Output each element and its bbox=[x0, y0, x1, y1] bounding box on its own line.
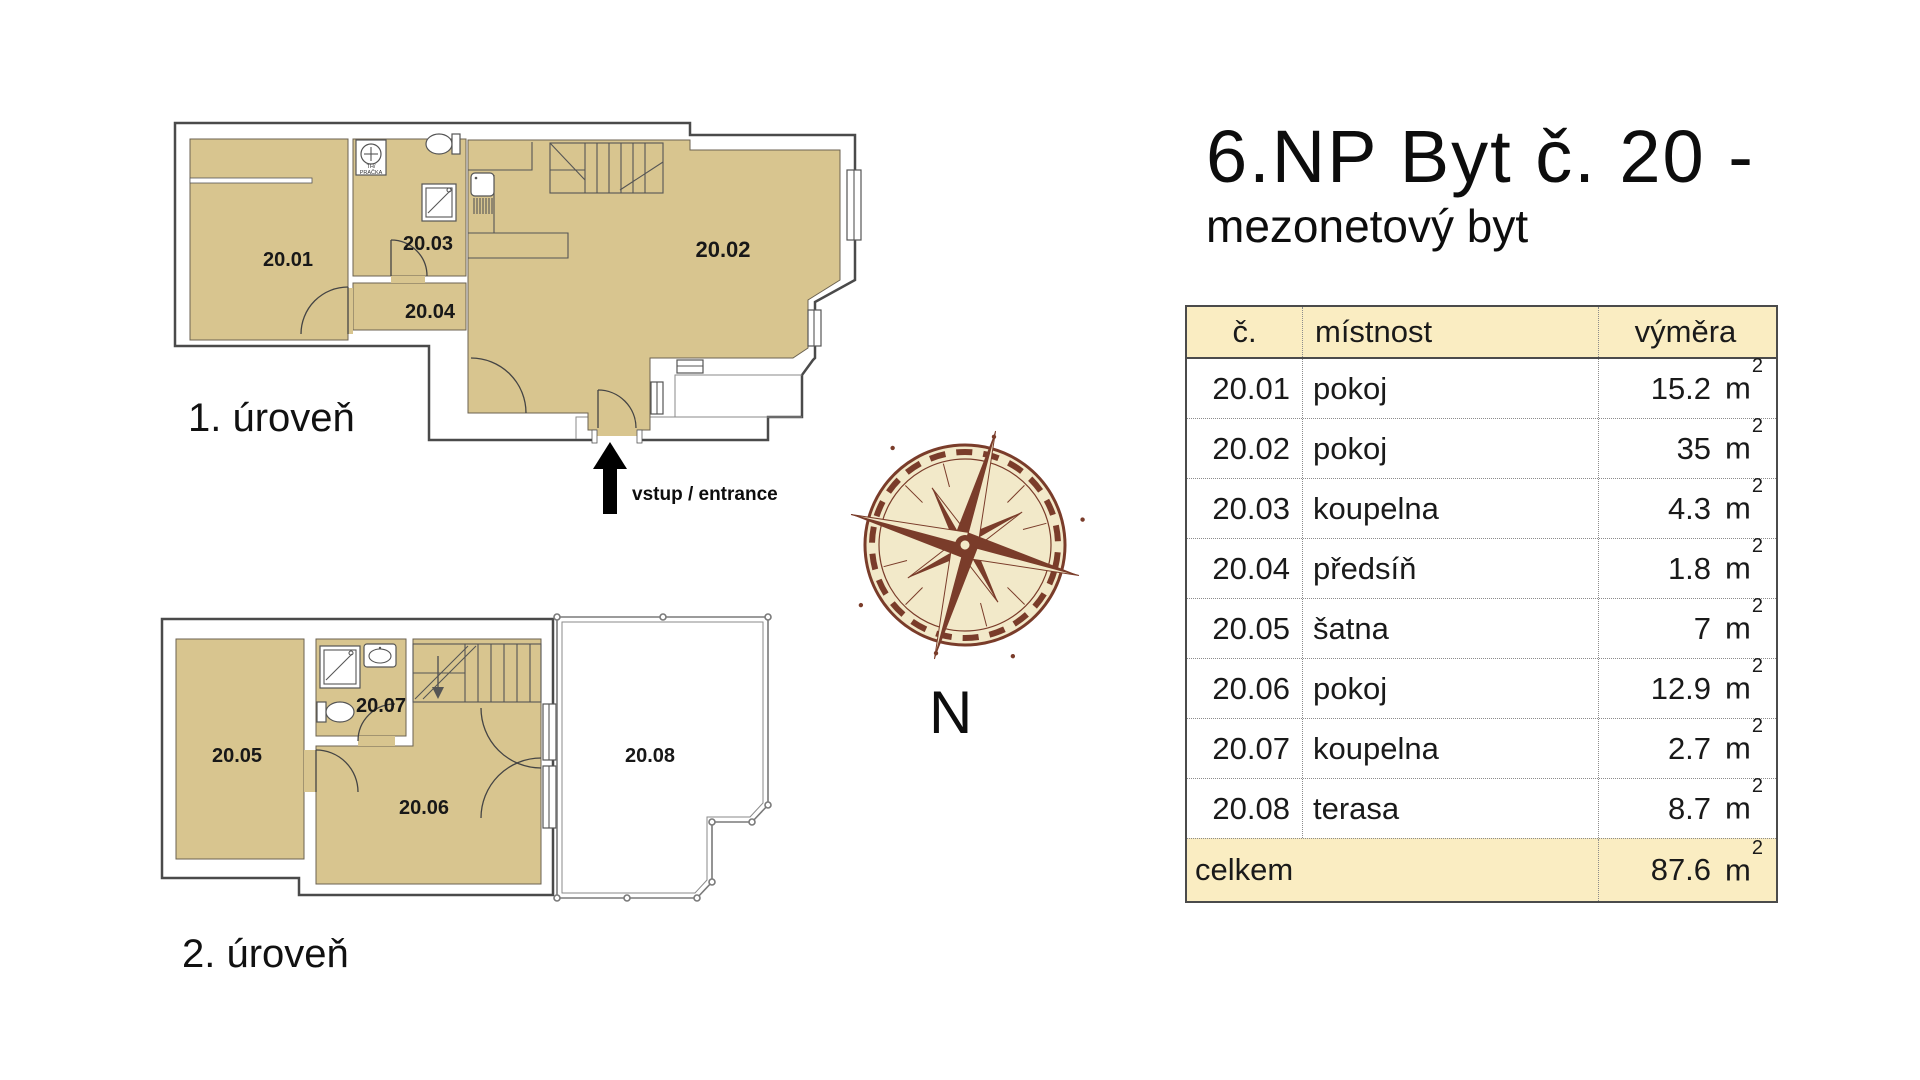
table-row: 20.07 koupelna 2.7m2 bbox=[1187, 718, 1776, 778]
cell-number: 20.03 bbox=[1187, 479, 1302, 538]
cell-number: 20.01 bbox=[1187, 359, 1302, 418]
cell-area: 35m2 bbox=[1598, 419, 1772, 478]
compass-rose-icon bbox=[820, 400, 1109, 689]
cell-number: 20.08 bbox=[1187, 779, 1302, 838]
room-area-table: č. místnost výměra 20.01 pokoj 15.2m2 20… bbox=[1185, 305, 1778, 903]
room-label-2004: 20.04 bbox=[405, 301, 456, 323]
cell-area: 1.8m2 bbox=[1598, 539, 1772, 598]
toilet-icon bbox=[326, 702, 354, 722]
room-2001-floor bbox=[190, 139, 348, 340]
cell-room: předsíň bbox=[1302, 539, 1598, 598]
toilet-icon bbox=[426, 134, 452, 154]
cell-area: 8.7m2 bbox=[1598, 779, 1772, 838]
floorplan-sheet: { "header": { "title": "6.NP Byt č. 20 -… bbox=[0, 0, 1920, 1080]
cell-number: 20.02 bbox=[1187, 419, 1302, 478]
table-row: 20.04 předsíň 1.8m2 bbox=[1187, 538, 1776, 598]
room-label-2008: 20.08 bbox=[625, 745, 675, 767]
entrance-door-gap bbox=[597, 436, 637, 444]
sink-drainer-icon bbox=[474, 198, 492, 214]
level2-plan: 20.05 20.07 20.06 20.08 bbox=[162, 614, 771, 901]
compass-north-label: N bbox=[929, 678, 972, 747]
room-label-2002: 20.02 bbox=[695, 237, 750, 262]
page-subtitle: mezonetový byt bbox=[1206, 199, 1528, 253]
room-label-2005: 20.05 bbox=[212, 745, 262, 767]
room-label-2001: 20.01 bbox=[263, 249, 313, 271]
room-label-2006: 20.06 bbox=[399, 797, 449, 819]
cell-room: pokoj bbox=[1302, 359, 1598, 418]
header-room: místnost bbox=[1302, 307, 1598, 357]
cell-number: 20.06 bbox=[1187, 659, 1302, 718]
cell-number: 20.04 bbox=[1187, 539, 1302, 598]
cell-area: 2.7m2 bbox=[1598, 719, 1772, 778]
washer-label-line2: PRAČKA bbox=[360, 169, 383, 176]
room-label-2007: 20.07 bbox=[356, 695, 406, 717]
shower-icon bbox=[320, 646, 360, 688]
door-jamb bbox=[592, 430, 597, 443]
total-label: celkem bbox=[1187, 839, 1598, 901]
entrance-label: vstup / entrance bbox=[632, 484, 778, 506]
windows-level2 bbox=[543, 704, 556, 828]
cell-room: koupelna bbox=[1302, 479, 1598, 538]
table-row: 20.02 pokoj 35m2 bbox=[1187, 418, 1776, 478]
table-row: 20.05 šatna 7m2 bbox=[1187, 598, 1776, 658]
room-2001-wall-slot bbox=[190, 178, 312, 183]
cell-area: 12.9m2 bbox=[1598, 659, 1772, 718]
door-opening bbox=[348, 288, 353, 334]
cell-room: šatna bbox=[1302, 599, 1598, 658]
table-total-row: celkem 87.6m2 bbox=[1187, 838, 1776, 901]
cell-number: 20.07 bbox=[1187, 719, 1302, 778]
level1-label: 1. úroveň bbox=[188, 396, 355, 441]
table-row: 20.06 pokoj 12.9m2 bbox=[1187, 658, 1776, 718]
door-opening bbox=[391, 276, 425, 283]
cell-room: koupelna bbox=[1302, 719, 1598, 778]
total-area: 87.6m2 bbox=[1598, 839, 1772, 901]
header-number: č. bbox=[1187, 307, 1302, 357]
door-opening bbox=[304, 750, 316, 792]
room-label-2003: 20.03 bbox=[403, 233, 453, 255]
cell-room: terasa bbox=[1302, 779, 1598, 838]
page-title: 6.NP Byt č. 20 - bbox=[1206, 114, 1755, 199]
table-row: 20.08 terasa 8.7m2 bbox=[1187, 778, 1776, 838]
entrance-arrow-icon bbox=[593, 442, 627, 514]
door-jamb bbox=[637, 430, 642, 443]
table-row: 20.01 pokoj 15.2m2 bbox=[1187, 359, 1776, 418]
table-header-row: č. místnost výměra bbox=[1187, 307, 1776, 359]
cell-area: 7m2 bbox=[1598, 599, 1772, 658]
level2-label: 2. úroveň bbox=[182, 932, 349, 977]
door-opening bbox=[358, 736, 395, 746]
header-area: výměra bbox=[1598, 307, 1772, 357]
cell-room: pokoj bbox=[1302, 419, 1598, 478]
cell-number: 20.05 bbox=[1187, 599, 1302, 658]
table-row: 20.03 koupelna 4.3m2 bbox=[1187, 478, 1776, 538]
level1-plan: TH/ PRAČKA bbox=[175, 123, 861, 514]
cell-room: pokoj bbox=[1302, 659, 1598, 718]
cell-area: 15.2m2 bbox=[1598, 359, 1772, 418]
cell-area: 4.3m2 bbox=[1598, 479, 1772, 538]
kitchen-sink-icon bbox=[471, 173, 494, 196]
